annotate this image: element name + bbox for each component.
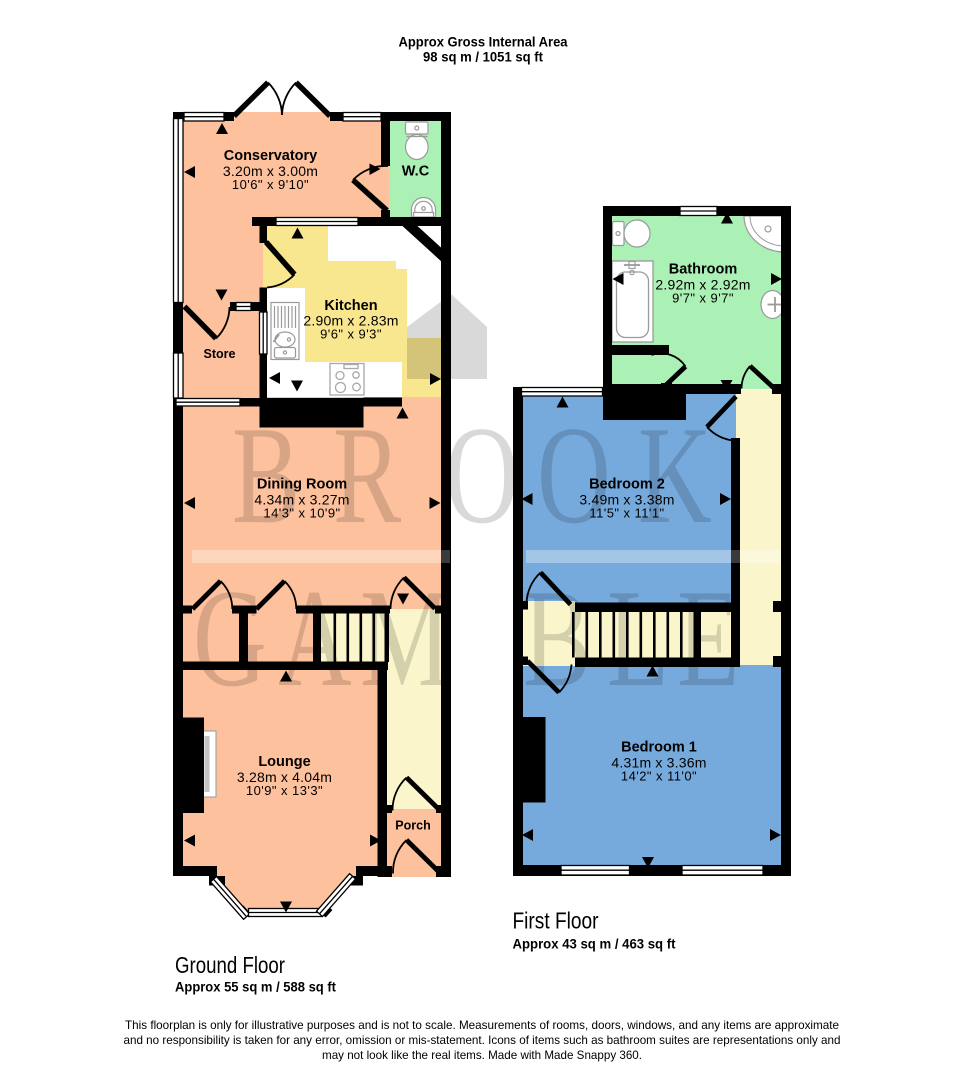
svg-text:Bedroom 1: Bedroom 1 bbox=[621, 740, 697, 756]
svg-text:Store: Store bbox=[204, 347, 236, 361]
svg-text:10'9" x 13'3": 10'9" x 13'3" bbox=[246, 783, 323, 798]
svg-text:and no responsibility is taken: and no responsibility is taken for any e… bbox=[124, 1033, 841, 1047]
svg-text:Dining Room: Dining Room bbox=[257, 477, 347, 493]
svg-text:Bathroom: Bathroom bbox=[669, 262, 737, 278]
svg-text:Approx 55 sq m / 588 sq ft: Approx 55 sq m / 588 sq ft bbox=[175, 979, 336, 995]
svg-text:14'3" x 10'9": 14'3" x 10'9" bbox=[263, 506, 340, 521]
svg-text:Conservatory: Conservatory bbox=[224, 148, 317, 164]
svg-text:98 sq m / 1051 sq ft: 98 sq m / 1051 sq ft bbox=[423, 50, 543, 65]
svg-text:Approx 43 sq m / 463 sq ft: Approx 43 sq m / 463 sq ft bbox=[513, 936, 676, 952]
svg-text:may not look like the real ite: may not look like the real items. Made w… bbox=[322, 1048, 642, 1062]
svg-text:Ground Floor: Ground Floor bbox=[175, 952, 285, 978]
svg-text:9'6" x 9'3": 9'6" x 9'3" bbox=[320, 327, 382, 342]
svg-text:Approx Gross Internal Area: Approx Gross Internal Area bbox=[399, 35, 568, 50]
svg-text:11'5" x 11'1": 11'5" x 11'1" bbox=[589, 506, 664, 521]
svg-text:W.C: W.C bbox=[402, 164, 430, 180]
svg-text:Bedroom 2: Bedroom 2 bbox=[589, 477, 665, 493]
svg-text:10'6" x 9'10": 10'6" x 9'10" bbox=[232, 177, 309, 192]
svg-text:Porch: Porch bbox=[395, 819, 430, 833]
svg-text:14'2" x 11'0": 14'2" x 11'0" bbox=[621, 769, 697, 784]
svg-text:9'7" x 9'7": 9'7" x 9'7" bbox=[672, 291, 734, 306]
svg-text:Lounge: Lounge bbox=[258, 754, 310, 770]
svg-text:This floorplan is only for ill: This floorplan is only for illustrative … bbox=[125, 1018, 839, 1032]
svg-text:First Floor: First Floor bbox=[513, 908, 599, 934]
